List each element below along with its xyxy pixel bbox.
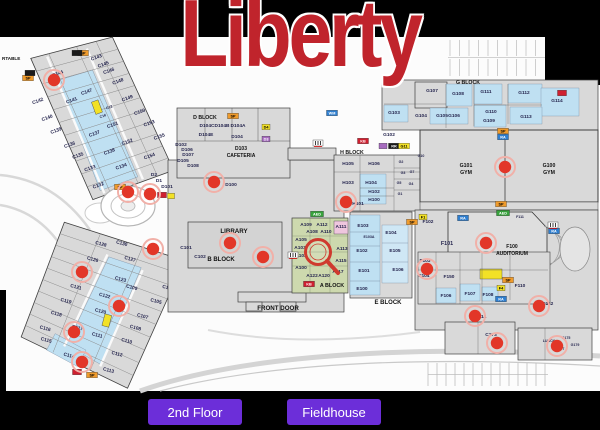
- room-label: D101: [161, 184, 173, 190]
- map-tag-box: [72, 50, 82, 56]
- block-label: D103: [235, 146, 247, 152]
- svg-text:F1: F1: [421, 216, 425, 220]
- room-label: G113: [520, 114, 532, 120]
- block-label: CAFETERIA: [227, 153, 256, 159]
- svg-text:KB: KB: [306, 283, 312, 287]
- room-label: H102: [368, 189, 380, 195]
- room-label: F106: [441, 293, 452, 299]
- room-label: E105: [389, 248, 401, 254]
- map-tag-sp: SP: [496, 201, 507, 207]
- block-label: GYM: [543, 170, 555, 176]
- map-tag-kb: KB: [304, 281, 315, 287]
- map-tag-aed: AED: [311, 211, 324, 217]
- front-door-porch: [238, 292, 306, 302]
- room-label: G112: [518, 90, 530, 96]
- room-label: A120: [318, 273, 330, 279]
- room-label: F107: [465, 291, 476, 297]
- campus-map: C144C143C145C146C148C149C150C153C155C147…: [0, 0, 600, 430]
- room-label: G107: [426, 88, 438, 94]
- block-label: FRONT DOOR: [257, 305, 299, 312]
- room-label: A112: [316, 222, 328, 228]
- svg-text:SP: SP: [89, 374, 95, 378]
- room-label: G2: [399, 160, 404, 164]
- room-label: A111: [336, 224, 347, 230]
- svg-text:SP: SP: [505, 279, 511, 283]
- room-label: C101: [180, 245, 192, 251]
- room-label: H104: [365, 180, 377, 186]
- map-tag-ra: RA: [498, 134, 509, 140]
- map-tag-box: [168, 193, 175, 199]
- block-label: H BLOCK: [340, 150, 364, 156]
- block-label: RTABLE: [2, 56, 20, 61]
- map-tag-aed: AED: [497, 210, 510, 216]
- room-label: F111: [516, 215, 524, 219]
- svg-text:SP: SP: [409, 221, 415, 225]
- room-label: C102: [194, 254, 206, 260]
- stairs-icon: [313, 140, 323, 146]
- room-label: G106: [448, 113, 460, 119]
- room-label: D108: [187, 163, 199, 169]
- svg-text:SP: SP: [230, 115, 236, 119]
- map-tag-g11: G11: [399, 143, 410, 149]
- room-label: G104: [415, 113, 427, 119]
- room-label: D104C: [200, 123, 215, 129]
- black-edge: [0, 290, 6, 391]
- room-label: A105: [295, 237, 307, 243]
- room-label: E106: [392, 267, 404, 273]
- room-label: H103: [342, 180, 354, 186]
- room-label: D104: [231, 134, 243, 140]
- room-label: G3: [401, 171, 406, 175]
- block-label: G100: [543, 163, 556, 169]
- svg-text:WM: WM: [329, 112, 336, 116]
- room-label: E103: [357, 223, 369, 229]
- map-tag-sp: SP: [407, 219, 418, 225]
- svg-text:SP: SP: [500, 130, 506, 134]
- room-label: D104E: [199, 132, 214, 138]
- room-label: A110: [320, 229, 332, 235]
- block-label: A BLOCK: [320, 283, 344, 289]
- room-label: A122: [306, 273, 318, 279]
- room-label: H105: [342, 161, 354, 167]
- room-label: D1: [156, 178, 162, 184]
- map-tag-rr: RR: [389, 143, 400, 149]
- block-label: F100: [506, 244, 518, 250]
- room-label: G5: [397, 181, 402, 185]
- map-tag-ra: RA: [458, 215, 469, 221]
- second-floor-button[interactable]: 2nd Floor: [148, 399, 242, 425]
- room-label: G102: [383, 132, 395, 138]
- room-label: G7: [410, 170, 415, 174]
- svg-text:SP: SP: [25, 77, 31, 81]
- map-tag-ra: RA: [549, 228, 560, 234]
- fieldhouse-button[interactable]: Fieldhouse: [287, 399, 381, 425]
- room-label: E103A: [364, 235, 375, 239]
- block-label: E BLOCK: [375, 300, 403, 306]
- svg-text:G11: G11: [401, 145, 408, 149]
- room-label: G109: [483, 118, 495, 124]
- app-window: C144C143C145C146C148C149C150C153C155C147…: [0, 0, 600, 430]
- room-label: G10: [418, 154, 425, 158]
- room-label: G110: [485, 109, 497, 115]
- room-label: F110: [515, 283, 526, 289]
- room-label: D2: [151, 172, 157, 178]
- svg-text:RA: RA: [498, 298, 504, 302]
- room-label: E100: [356, 286, 368, 292]
- map-tag-sp: SP: [23, 75, 34, 81]
- map-tag-f1: F1: [419, 214, 427, 220]
- room-label: A100: [295, 265, 307, 271]
- room-label: E104: [385, 230, 397, 236]
- stairs-icon: [288, 252, 298, 258]
- room-label: H100: [368, 197, 380, 203]
- room-label: G4: [409, 182, 414, 186]
- room-label: E101: [358, 268, 370, 274]
- black-corner: [545, 37, 600, 85]
- svg-text:AED: AED: [499, 212, 507, 216]
- room-label: G105: [436, 113, 448, 119]
- svg-text:D3: D3: [264, 138, 269, 142]
- room-label: H106: [368, 161, 380, 167]
- map-tag-box: [25, 70, 35, 76]
- map-tag-f4: F4: [497, 285, 505, 291]
- room-label: G108: [452, 91, 464, 97]
- svg-text:KB: KB: [360, 140, 366, 144]
- room-label: A115: [335, 258, 347, 264]
- room-label: G111: [480, 89, 492, 95]
- room-label: D104A: [231, 123, 246, 129]
- map-tag-sp: SP: [503, 277, 514, 283]
- room-label: A113: [336, 246, 348, 252]
- room-label: G1: [398, 192, 403, 196]
- map-tag-wm: WM: [327, 110, 338, 116]
- map-tag-ra: RA: [496, 296, 507, 302]
- svg-text:SP: SP: [498, 203, 504, 207]
- block-label: G101: [460, 163, 473, 169]
- block-label: B BLOCK: [207, 257, 235, 263]
- room-label: E102: [356, 248, 368, 254]
- map-tag-sp: SP: [498, 128, 509, 134]
- block-label: D BLOCK: [193, 115, 217, 121]
- svg-text:RR: RR: [391, 145, 397, 149]
- room-label: D104B: [215, 123, 230, 129]
- svg-text:RA: RA: [500, 136, 506, 140]
- room-label: G179: [571, 343, 580, 347]
- map-tag-d4: D4: [262, 124, 270, 130]
- map-tag-box: [558, 90, 567, 96]
- room-label: D100: [225, 182, 237, 188]
- room-label: F108: [483, 292, 494, 298]
- stairs-icon: [548, 222, 558, 228]
- room-label: F101: [441, 241, 453, 247]
- room-label: G103: [388, 110, 400, 116]
- block-label: G BLOCK: [456, 80, 480, 86]
- svg-text:AED: AED: [313, 213, 321, 217]
- svg-text:RA: RA: [551, 230, 557, 234]
- block-label: GYM: [460, 170, 472, 176]
- room-label: D107: [182, 152, 194, 158]
- map-tag-kb: KB: [358, 138, 369, 144]
- svg-text:RA: RA: [460, 217, 466, 221]
- block-label: AUDITORIUM: [496, 251, 528, 257]
- room-label: G114: [551, 98, 563, 104]
- room-label: A109: [300, 222, 312, 228]
- map-tag-sp: SP: [87, 372, 98, 378]
- map-tag-d3: D3: [262, 136, 270, 142]
- map-tag-box: [379, 143, 387, 149]
- map-tag-sp: SP: [228, 113, 239, 119]
- room-label: F150: [444, 274, 455, 280]
- room-label: A108: [306, 229, 318, 235]
